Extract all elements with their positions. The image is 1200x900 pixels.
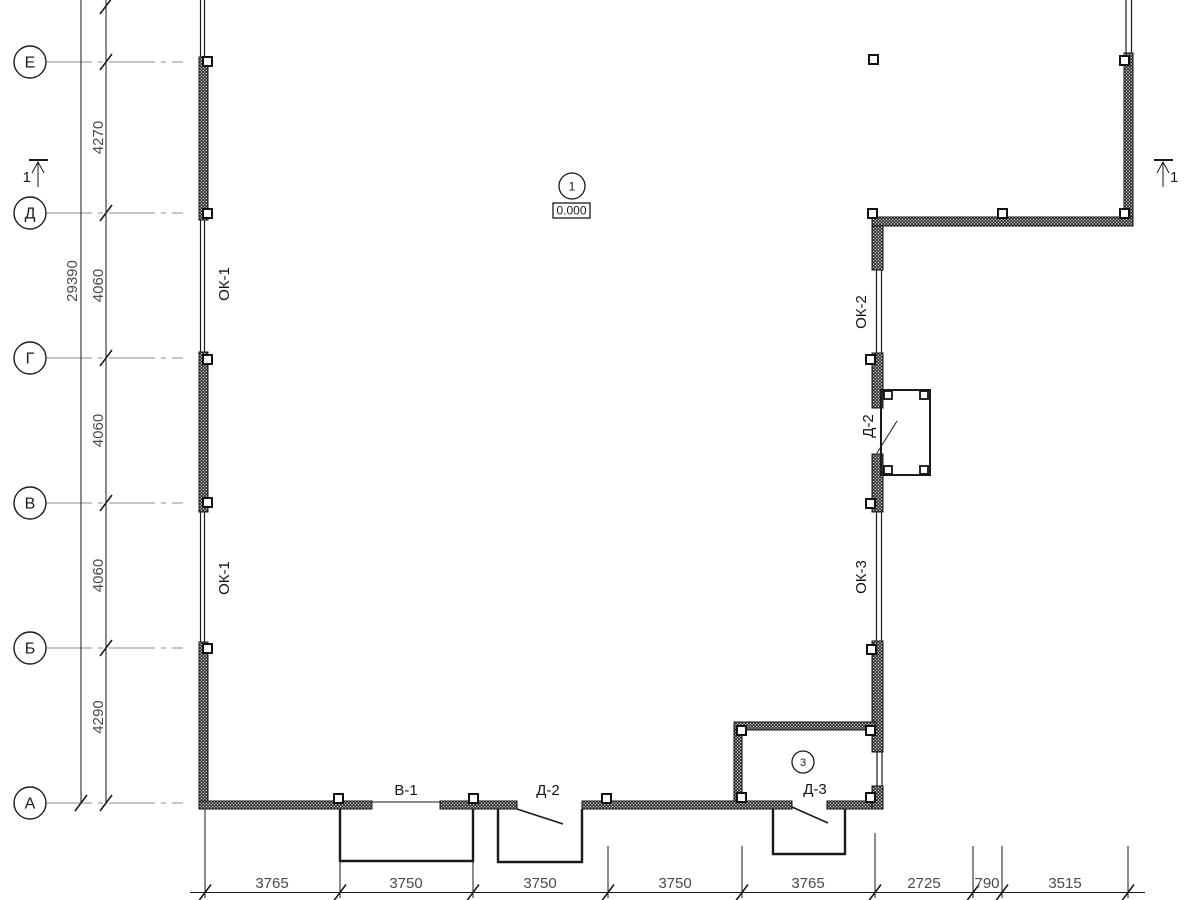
wall-segment	[199, 642, 208, 809]
section-number-right: 1	[1170, 169, 1178, 186]
sill-mark	[866, 726, 875, 735]
plan-canvas: Е Д Г В Б	[0, 0, 1200, 900]
label-d3: Д-3	[803, 781, 827, 798]
sill-mark	[203, 355, 212, 364]
sill-mark	[867, 645, 876, 654]
sill-mark	[334, 794, 343, 803]
sill-mark	[469, 794, 478, 803]
section-mark-right: 1	[1154, 160, 1178, 187]
door-frame-mark	[884, 466, 892, 474]
axis-row-a: А	[14, 787, 183, 819]
dim-value: 3750	[523, 875, 556, 892]
axis-letter: Е	[25, 55, 36, 72]
axis-letter: Б	[25, 641, 36, 658]
wall-segment	[199, 801, 372, 809]
door-frame-mark	[884, 391, 892, 399]
axis-row-e: Е	[14, 46, 183, 78]
room1-tag-number: 1	[569, 180, 576, 194]
sill-mark	[602, 794, 611, 803]
sill-mark	[866, 793, 875, 802]
sill-mark	[866, 499, 875, 508]
label-ok1-upper: ОК-1	[216, 267, 233, 301]
axis-letter: А	[25, 796, 36, 813]
wall-segment	[199, 57, 208, 220]
sill-mark	[866, 355, 875, 364]
porch-d3	[773, 809, 845, 854]
dim-value-total: 29390	[64, 260, 81, 302]
porch-v1	[340, 809, 473, 861]
sill-mark	[737, 793, 746, 802]
sill-marks	[203, 55, 1129, 803]
sill-mark	[998, 209, 1007, 218]
room-tags: 1 0.000 3	[553, 173, 814, 773]
sill-mark	[203, 498, 212, 507]
sill-mark	[203, 209, 212, 218]
wall-segment	[872, 226, 883, 270]
label-ok1-lower: ОК-1	[216, 561, 233, 595]
dim-value: 4270	[90, 121, 107, 154]
axis-row-g: Г	[14, 342, 183, 374]
axis-letter: В	[25, 496, 36, 513]
dim-value: 4060	[90, 269, 107, 302]
wall-segment-interior	[734, 722, 876, 730]
sill-mark	[868, 209, 877, 218]
axis-row-b: Б	[14, 632, 183, 664]
wall-segment	[199, 352, 208, 512]
axis-row-d: Д	[14, 197, 183, 229]
axis-row-v: В	[14, 487, 183, 519]
dim-value: 3750	[658, 875, 691, 892]
floor-plan-drawing: Е Д Г В Б	[0, 0, 1200, 900]
sill-mark	[1120, 56, 1129, 65]
door-d2-right-swing	[881, 390, 930, 475]
door-frame-mark	[920, 391, 928, 399]
dim-value: 2725	[907, 875, 940, 892]
dim-value: 3765	[791, 875, 824, 892]
dim-value: 3765	[255, 875, 288, 892]
label-v1: В-1	[394, 782, 417, 799]
door-leaf-d3	[792, 807, 828, 823]
dim-value: 3750	[389, 875, 422, 892]
label-ok3: ОК-3	[853, 560, 870, 594]
dim-value: 4290	[90, 700, 107, 733]
sill-mark	[1120, 209, 1129, 218]
sill-mark	[737, 726, 746, 735]
level-mark-value: 0.000	[556, 204, 586, 218]
room3-tag-number: 3	[800, 757, 806, 769]
section-number-left: 1	[23, 169, 31, 186]
label-d2-bottom: Д-2	[536, 782, 560, 799]
sill-mark	[203, 57, 212, 66]
section-mark-left: 1	[23, 160, 48, 187]
dim-value: 4060	[90, 414, 107, 447]
walls	[199, 53, 1133, 809]
windows	[201, 0, 1132, 786]
sill-mark	[203, 644, 212, 653]
label-d2-right: Д-2	[860, 414, 877, 438]
doors-and-porches	[340, 390, 930, 862]
axis-letter: Г	[26, 351, 35, 368]
wall-segment	[1124, 53, 1133, 226]
axis-letter: Д	[25, 206, 36, 223]
vertical-dimension-chain: 4270 4060 4060 4060 4290 29390	[64, 0, 112, 803]
label-ok2: ОК-2	[853, 295, 870, 329]
opening-labels: ОК-1 ОК-1 ОК-2 ОК-3 Д-2 В-1 Д-2 Д-3	[216, 267, 877, 799]
dim-value: 4060	[90, 559, 107, 592]
door-leaf-d2	[517, 809, 563, 824]
door-frame-mark	[920, 466, 928, 474]
dim-value: 3515	[1048, 875, 1081, 892]
dim-value: 790	[974, 875, 999, 892]
column-mark	[869, 55, 878, 64]
wall-segment	[582, 801, 792, 809]
wall-segment-interior	[734, 730, 742, 801]
